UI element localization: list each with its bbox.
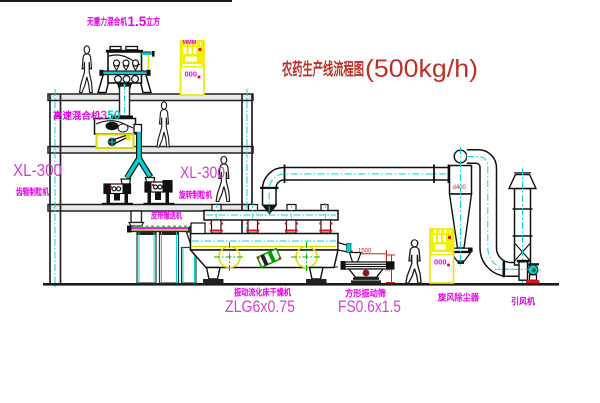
svg-text:ZLG6x0.75: ZLG6x0.75 (225, 298, 295, 316)
svg-text:农药生产线流程图: 农药生产线流程图 (281, 59, 364, 79)
svg-text:方形振动筛: 方形振动筛 (345, 288, 386, 299)
svg-text:皮带输送机: 皮带输送机 (150, 210, 182, 221)
svg-text:d400: d400 (453, 185, 467, 191)
svg-text:齿辊制粒机: 齿辊制粒机 (16, 186, 49, 197)
svg-text:旋转制粒机: 旋转制粒机 (178, 189, 212, 200)
svg-text:高速混合机350: 高速混合机350 (53, 108, 121, 122)
svg-text:(500kg/h): (500kg/h) (365, 55, 478, 83)
svg-text:FS0.6x1.5: FS0.6x1.5 (338, 298, 401, 316)
svg-text:振动流化床干燥机: 振动流化床干燥机 (234, 287, 291, 298)
svg-text:XL-300: XL-300 (13, 160, 62, 180)
svg-text:无重力混合机: 无重力混合机 (86, 16, 127, 28)
svg-text:MMM: MMM (183, 40, 197, 46)
svg-text:XL-300: XL-300 (180, 164, 225, 182)
svg-text:引风机: 引风机 (511, 296, 535, 307)
svg-text:立方: 立方 (146, 16, 160, 28)
svg-text:1.5: 1.5 (128, 14, 147, 29)
svg-text:旋风除尘器: 旋风除尘器 (437, 292, 480, 303)
